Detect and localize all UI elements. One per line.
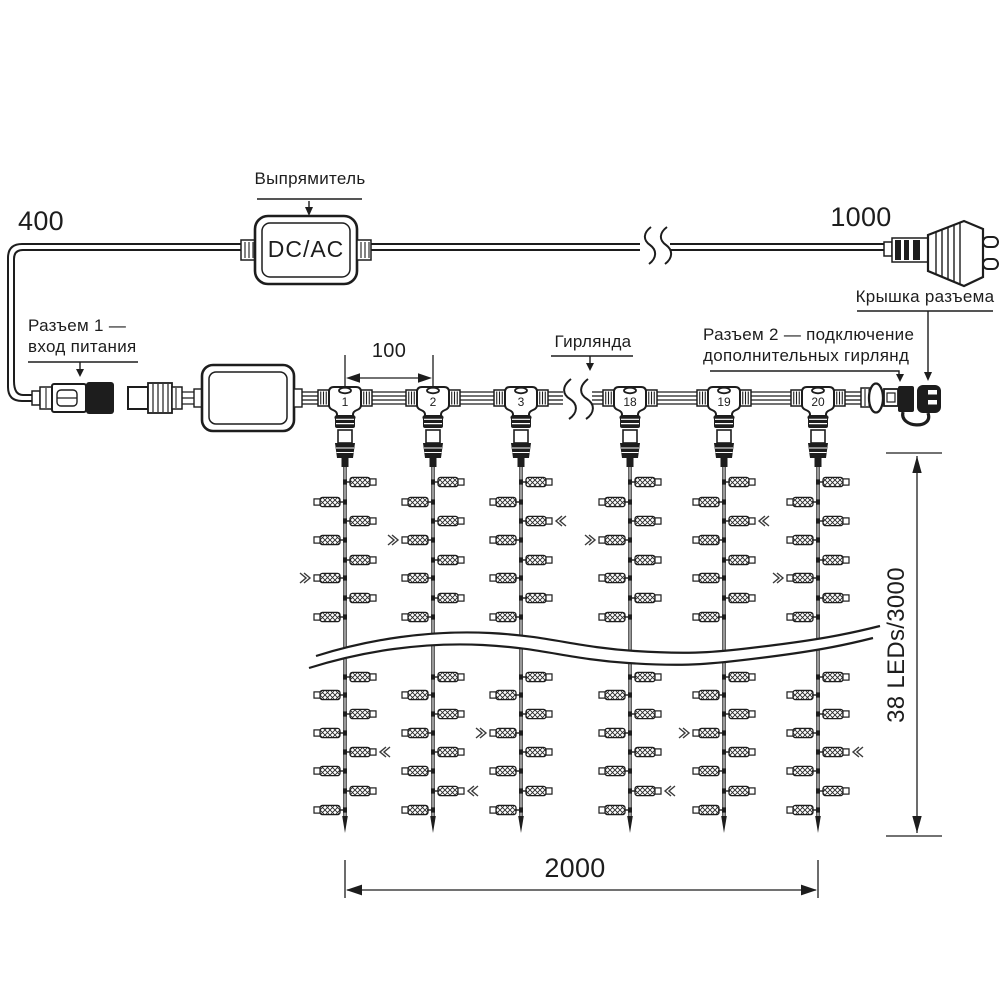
led-lamp bbox=[787, 497, 820, 506]
dimension-label-height: 38 LEDs/3000 bbox=[883, 525, 911, 765]
direction-chevron bbox=[556, 516, 566, 526]
led-lamp bbox=[599, 728, 632, 737]
led-lamp bbox=[787, 805, 820, 814]
dimension-label-1000: 1000 bbox=[828, 202, 894, 233]
string-tip bbox=[518, 816, 524, 833]
led-lamp bbox=[343, 516, 376, 525]
led-lamp bbox=[816, 786, 849, 795]
t-connector-number: 1 bbox=[342, 395, 349, 409]
direction-chevron bbox=[585, 535, 595, 545]
controller-box bbox=[202, 365, 302, 431]
garland-cable-break bbox=[564, 379, 593, 419]
led-lamp bbox=[431, 593, 464, 602]
led-lamp bbox=[402, 497, 435, 506]
led-lamp bbox=[693, 573, 726, 582]
power-input-connector bbox=[32, 382, 114, 414]
led-lamp bbox=[599, 497, 632, 506]
dimension-label-400: 400 bbox=[18, 206, 64, 237]
led-lamp bbox=[402, 690, 435, 699]
led-lamp bbox=[628, 747, 661, 756]
led-lamp bbox=[314, 805, 347, 814]
led-lamp bbox=[628, 672, 661, 681]
led-lamp bbox=[490, 805, 523, 814]
light-string: 19 bbox=[679, 387, 769, 833]
led-lamp bbox=[722, 747, 755, 756]
led-lamp bbox=[693, 805, 726, 814]
led-lamp bbox=[314, 573, 347, 582]
led-lamp bbox=[314, 497, 347, 506]
led-lamp bbox=[314, 690, 347, 699]
led-lamp bbox=[314, 728, 347, 737]
led-lamp bbox=[628, 786, 661, 795]
led-lamp bbox=[816, 477, 849, 486]
led-lamp bbox=[628, 516, 661, 525]
led-lamp bbox=[628, 709, 661, 718]
led-lamp bbox=[519, 555, 552, 564]
led-lamp bbox=[402, 805, 435, 814]
hanging-slot bbox=[718, 388, 730, 394]
led-lamp bbox=[343, 747, 376, 756]
led-lamp bbox=[816, 593, 849, 602]
led-lamp bbox=[628, 593, 661, 602]
led-lamp bbox=[722, 516, 755, 525]
led-lamp bbox=[722, 593, 755, 602]
led-lamp bbox=[816, 555, 849, 564]
led-lamp bbox=[693, 728, 726, 737]
led-lamp bbox=[431, 672, 464, 681]
led-lamp bbox=[490, 573, 523, 582]
led-lamp bbox=[787, 690, 820, 699]
mains-plug bbox=[884, 221, 998, 286]
led-lamp bbox=[599, 535, 632, 544]
led-lamp bbox=[490, 535, 523, 544]
dimension-label-2000: 2000 bbox=[525, 853, 625, 884]
led-lamp bbox=[787, 728, 820, 737]
rectifier-box-label: DC/AC bbox=[262, 236, 350, 263]
direction-chevron bbox=[468, 786, 478, 796]
hanging-slot bbox=[339, 388, 351, 394]
string-tip bbox=[342, 816, 348, 833]
led-lamp bbox=[599, 573, 632, 582]
connector1-label-line1: Разъем 1 — bbox=[28, 316, 126, 336]
led-lamp bbox=[599, 805, 632, 814]
hanging-slot bbox=[515, 388, 527, 394]
led-lamp bbox=[431, 555, 464, 564]
connector1-leader bbox=[28, 362, 138, 377]
led-lamp bbox=[343, 672, 376, 681]
direction-chevron bbox=[388, 535, 398, 545]
led-lamp bbox=[343, 786, 376, 795]
curtain-break-wave bbox=[309, 626, 880, 668]
direction-chevron bbox=[476, 728, 486, 738]
led-lamp bbox=[490, 766, 523, 775]
t-connector-number: 20 bbox=[811, 395, 825, 409]
led-lamp bbox=[787, 612, 820, 621]
light-string: 1 bbox=[300, 387, 390, 833]
direction-chevron bbox=[853, 747, 863, 757]
led-lamp bbox=[628, 477, 661, 486]
led-lamp bbox=[722, 477, 755, 486]
connector2-label-line2: дополнительных гирлянд bbox=[703, 346, 907, 366]
garland-leader bbox=[551, 356, 633, 371]
string-tip bbox=[721, 816, 727, 833]
hanging-slot bbox=[812, 388, 824, 394]
led-lamp bbox=[314, 535, 347, 544]
controller-plug-connector bbox=[128, 383, 202, 413]
led-lamp bbox=[816, 672, 849, 681]
t-connector-number: 2 bbox=[430, 395, 437, 409]
t-connector-number: 18 bbox=[623, 395, 637, 409]
led-lamp bbox=[599, 612, 632, 621]
rectifier-label: Выпрямитель bbox=[252, 169, 368, 189]
light-string: 18 bbox=[585, 387, 675, 833]
led-lamp bbox=[722, 555, 755, 564]
led-lamp bbox=[490, 612, 523, 621]
dimension-label-100: 100 bbox=[361, 340, 417, 363]
led-lamp bbox=[490, 497, 523, 506]
led-lamp bbox=[343, 555, 376, 564]
led-lamp bbox=[431, 786, 464, 795]
led-lamp bbox=[402, 573, 435, 582]
direction-chevron bbox=[300, 573, 310, 583]
led-lamp bbox=[431, 747, 464, 756]
light-string: 2 bbox=[388, 387, 478, 833]
led-lamp bbox=[816, 516, 849, 525]
string-tip bbox=[627, 816, 633, 833]
led-lamp bbox=[722, 672, 755, 681]
led-lamp bbox=[519, 477, 552, 486]
rectifier-leader bbox=[257, 199, 362, 216]
led-lamp bbox=[519, 516, 552, 525]
connector2-leader bbox=[710, 371, 904, 382]
connector1-label-line2: вход питания bbox=[28, 337, 137, 357]
led-lamp bbox=[402, 766, 435, 775]
connector-cap-label: Крышка разъема bbox=[853, 287, 997, 307]
led-lamp bbox=[343, 709, 376, 718]
led-lamp bbox=[343, 477, 376, 486]
direction-chevron bbox=[380, 747, 390, 757]
led-lamp bbox=[490, 728, 523, 737]
power-cable-right bbox=[371, 227, 888, 264]
led-lamp bbox=[599, 766, 632, 775]
connector-cap bbox=[917, 385, 941, 413]
led-lamp bbox=[693, 690, 726, 699]
led-lamp bbox=[431, 516, 464, 525]
led-lamp bbox=[314, 766, 347, 775]
hanging-slot bbox=[624, 388, 636, 394]
direction-chevron bbox=[665, 786, 675, 796]
led-lamp bbox=[722, 709, 755, 718]
string-tip bbox=[815, 816, 821, 833]
led-lamp bbox=[519, 709, 552, 718]
led-lamp bbox=[787, 535, 820, 544]
led-lamp bbox=[816, 709, 849, 718]
hanging-slot bbox=[427, 388, 439, 394]
led-lamp bbox=[490, 690, 523, 699]
diagram-canvas: 123181920 bbox=[0, 0, 1000, 1000]
led-lamp bbox=[693, 535, 726, 544]
connector2-label-line1: Разъем 2 — подключение bbox=[703, 325, 907, 345]
led-lamp bbox=[722, 786, 755, 795]
direction-chevron bbox=[759, 516, 769, 526]
t-connector-number: 19 bbox=[717, 395, 731, 409]
led-lamp bbox=[314, 612, 347, 621]
led-lamp bbox=[519, 593, 552, 602]
led-lamp bbox=[628, 555, 661, 564]
led-lamp bbox=[519, 786, 552, 795]
led-lamp bbox=[787, 766, 820, 775]
direction-chevron bbox=[679, 728, 689, 738]
direction-chevron bbox=[773, 573, 783, 583]
led-lamp bbox=[431, 709, 464, 718]
led-lamp bbox=[431, 477, 464, 486]
light-string: 20 bbox=[773, 387, 863, 833]
led-lamp bbox=[519, 672, 552, 681]
led-lamp bbox=[519, 747, 552, 756]
led-lamp bbox=[787, 573, 820, 582]
t-connector-number: 3 bbox=[518, 395, 525, 409]
wiring-diagram: 123181920 bbox=[0, 0, 1000, 1000]
string-tip bbox=[430, 816, 436, 833]
led-lamp bbox=[693, 497, 726, 506]
led-lamp bbox=[343, 593, 376, 602]
garland-label: Гирлянда bbox=[549, 332, 637, 352]
led-lamp bbox=[402, 535, 435, 544]
light-string: 3 bbox=[476, 387, 566, 833]
led-lamp bbox=[693, 612, 726, 621]
led-lamp bbox=[816, 747, 849, 756]
led-lamp bbox=[693, 766, 726, 775]
led-lamp bbox=[599, 690, 632, 699]
led-lamp bbox=[402, 612, 435, 621]
led-lamp bbox=[402, 728, 435, 737]
